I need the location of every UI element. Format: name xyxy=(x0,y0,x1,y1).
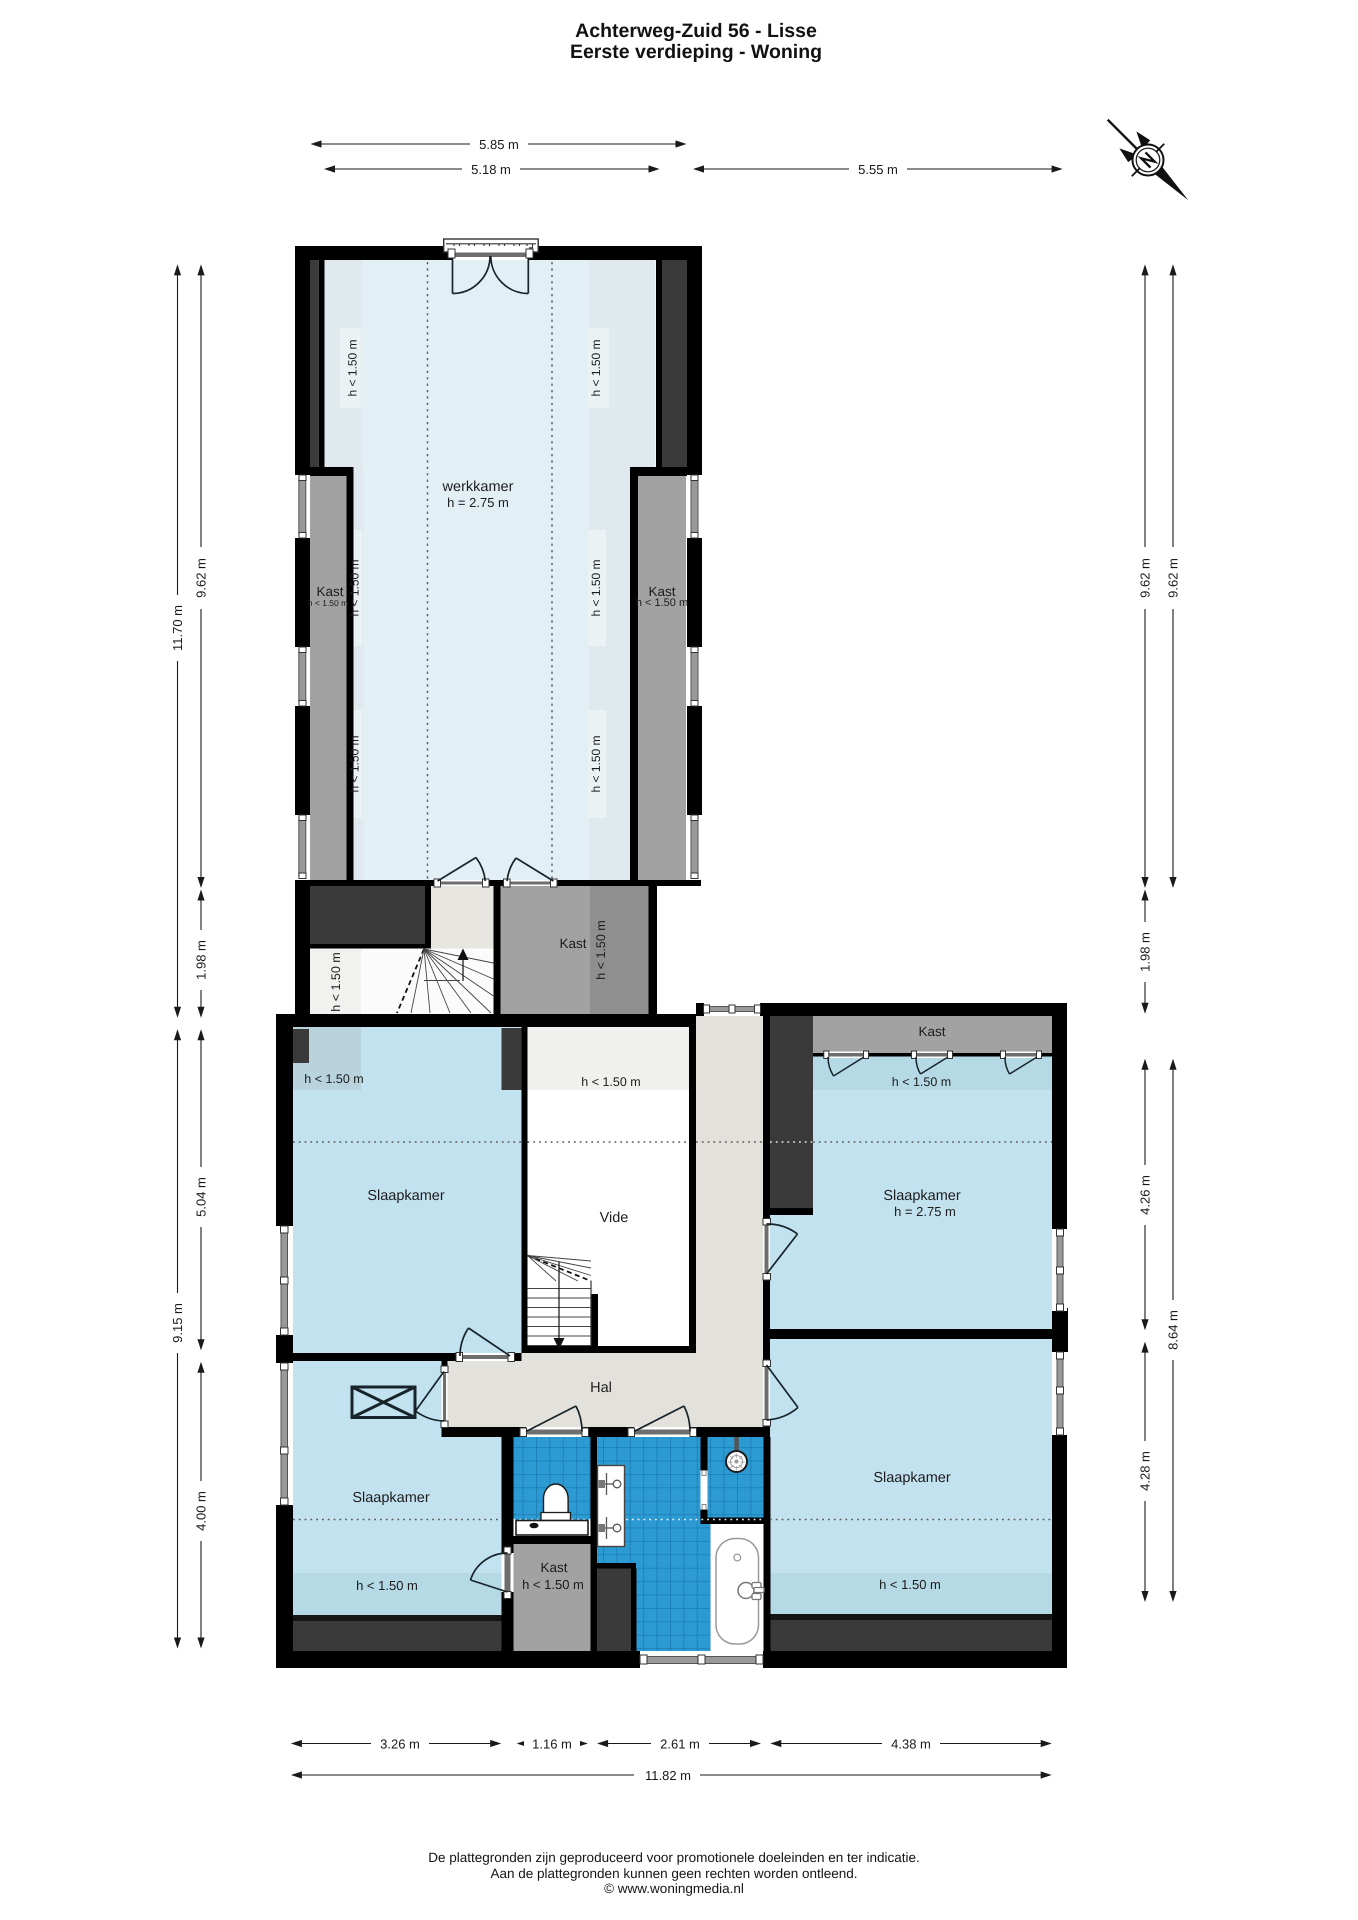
svg-text:5.04 m: 5.04 m xyxy=(194,1177,209,1217)
svg-text:Slaapkamer: Slaapkamer xyxy=(873,1470,951,1486)
svg-text:h < 1.50 m: h < 1.50 m xyxy=(581,1075,640,1089)
svg-text:Slaapkamer: Slaapkamer xyxy=(367,1188,445,1204)
svg-text:5.55 m: 5.55 m xyxy=(858,162,898,177)
svg-text:11.70 m: 11.70 m xyxy=(170,605,185,651)
svg-text:h < 1.50 m: h < 1.50 m xyxy=(589,735,603,792)
svg-text:Kast: Kast xyxy=(559,936,586,951)
svg-text:h < 1.50 m: h < 1.50 m xyxy=(348,559,362,616)
svg-text:h < 1.50 m: h < 1.50 m xyxy=(892,1075,951,1089)
svg-text:h = 2.75 m: h = 2.75 m xyxy=(447,495,509,510)
svg-text:© www.woningmedia.nl: © www.woningmedia.nl xyxy=(604,1881,744,1896)
svg-text:Eerste verdieping - Woning: Eerste verdieping - Woning xyxy=(570,41,822,63)
svg-text:h < 1.50 m: h < 1.50 m xyxy=(348,735,362,792)
svg-text:4.38 m: 4.38 m xyxy=(891,1737,931,1752)
svg-text:Kast: Kast xyxy=(316,584,343,599)
svg-text:h < 1.50 m: h < 1.50 m xyxy=(304,1072,363,1086)
svg-text:1.98 m: 1.98 m xyxy=(1138,932,1153,972)
svg-text:1.16 m: 1.16 m xyxy=(532,1737,572,1752)
svg-text:Hal: Hal xyxy=(590,1380,612,1396)
svg-text:Aan de plattegronden kunnen ge: Aan de plattegronden kunnen geen rechten… xyxy=(490,1866,857,1881)
svg-text:3.26 m: 3.26 m xyxy=(380,1737,420,1752)
svg-text:Slaapkamer: Slaapkamer xyxy=(883,1188,961,1204)
svg-text:h < 1.50 m: h < 1.50 m xyxy=(346,339,360,396)
svg-text:9.62 m: 9.62 m xyxy=(194,558,209,598)
svg-text:2.61 m: 2.61 m xyxy=(660,1737,700,1752)
svg-text:4.26 m: 4.26 m xyxy=(1138,1175,1153,1215)
svg-text:h < 1.50 m: h < 1.50 m xyxy=(356,1578,418,1593)
svg-text:h < 1.50 m: h < 1.50 m xyxy=(522,1577,584,1592)
svg-text:h < 1.50 m: h < 1.50 m xyxy=(594,920,608,979)
svg-text:h < 1.50 m: h < 1.50 m xyxy=(329,952,343,1011)
svg-text:9.15 m: 9.15 m xyxy=(170,1303,185,1343)
svg-text:h < 1.50 m: h < 1.50 m xyxy=(589,339,603,396)
svg-text:Kast: Kast xyxy=(918,1024,945,1039)
svg-text:h < 1.50 m: h < 1.50 m xyxy=(308,598,348,608)
svg-text:8.64 m: 8.64 m xyxy=(1166,1310,1181,1350)
svg-text:h = 2.75 m: h = 2.75 m xyxy=(894,1204,956,1219)
svg-text:4.00 m: 4.00 m xyxy=(194,1491,209,1531)
svg-text:Vide: Vide xyxy=(600,1210,629,1226)
svg-text:9.62 m: 9.62 m xyxy=(1166,558,1181,598)
svg-text:h < 1.50 m: h < 1.50 m xyxy=(589,559,603,616)
svg-text:5.85 m: 5.85 m xyxy=(479,137,519,152)
svg-text:5.18 m: 5.18 m xyxy=(471,162,511,177)
svg-text:h < 1.50 m: h < 1.50 m xyxy=(636,597,688,609)
svg-text:werkkamer: werkkamer xyxy=(442,479,514,495)
svg-text:Kast: Kast xyxy=(540,1560,567,1575)
svg-text:De plattegronden zijn geproduc: De plattegronden zijn geproduceerd voor … xyxy=(428,1850,920,1865)
svg-text:h < 1.50 m: h < 1.50 m xyxy=(879,1577,941,1592)
svg-text:Achterweg-Zuid 56 - Lisse: Achterweg-Zuid 56 - Lisse xyxy=(575,20,817,42)
svg-text:1.98 m: 1.98 m xyxy=(194,940,209,980)
svg-text:9.62 m: 9.62 m xyxy=(1138,558,1153,598)
svg-text:4.28 m: 4.28 m xyxy=(1138,1451,1153,1491)
svg-text:11.82 m: 11.82 m xyxy=(645,1768,691,1783)
svg-text:Slaapkamer: Slaapkamer xyxy=(352,1490,430,1506)
